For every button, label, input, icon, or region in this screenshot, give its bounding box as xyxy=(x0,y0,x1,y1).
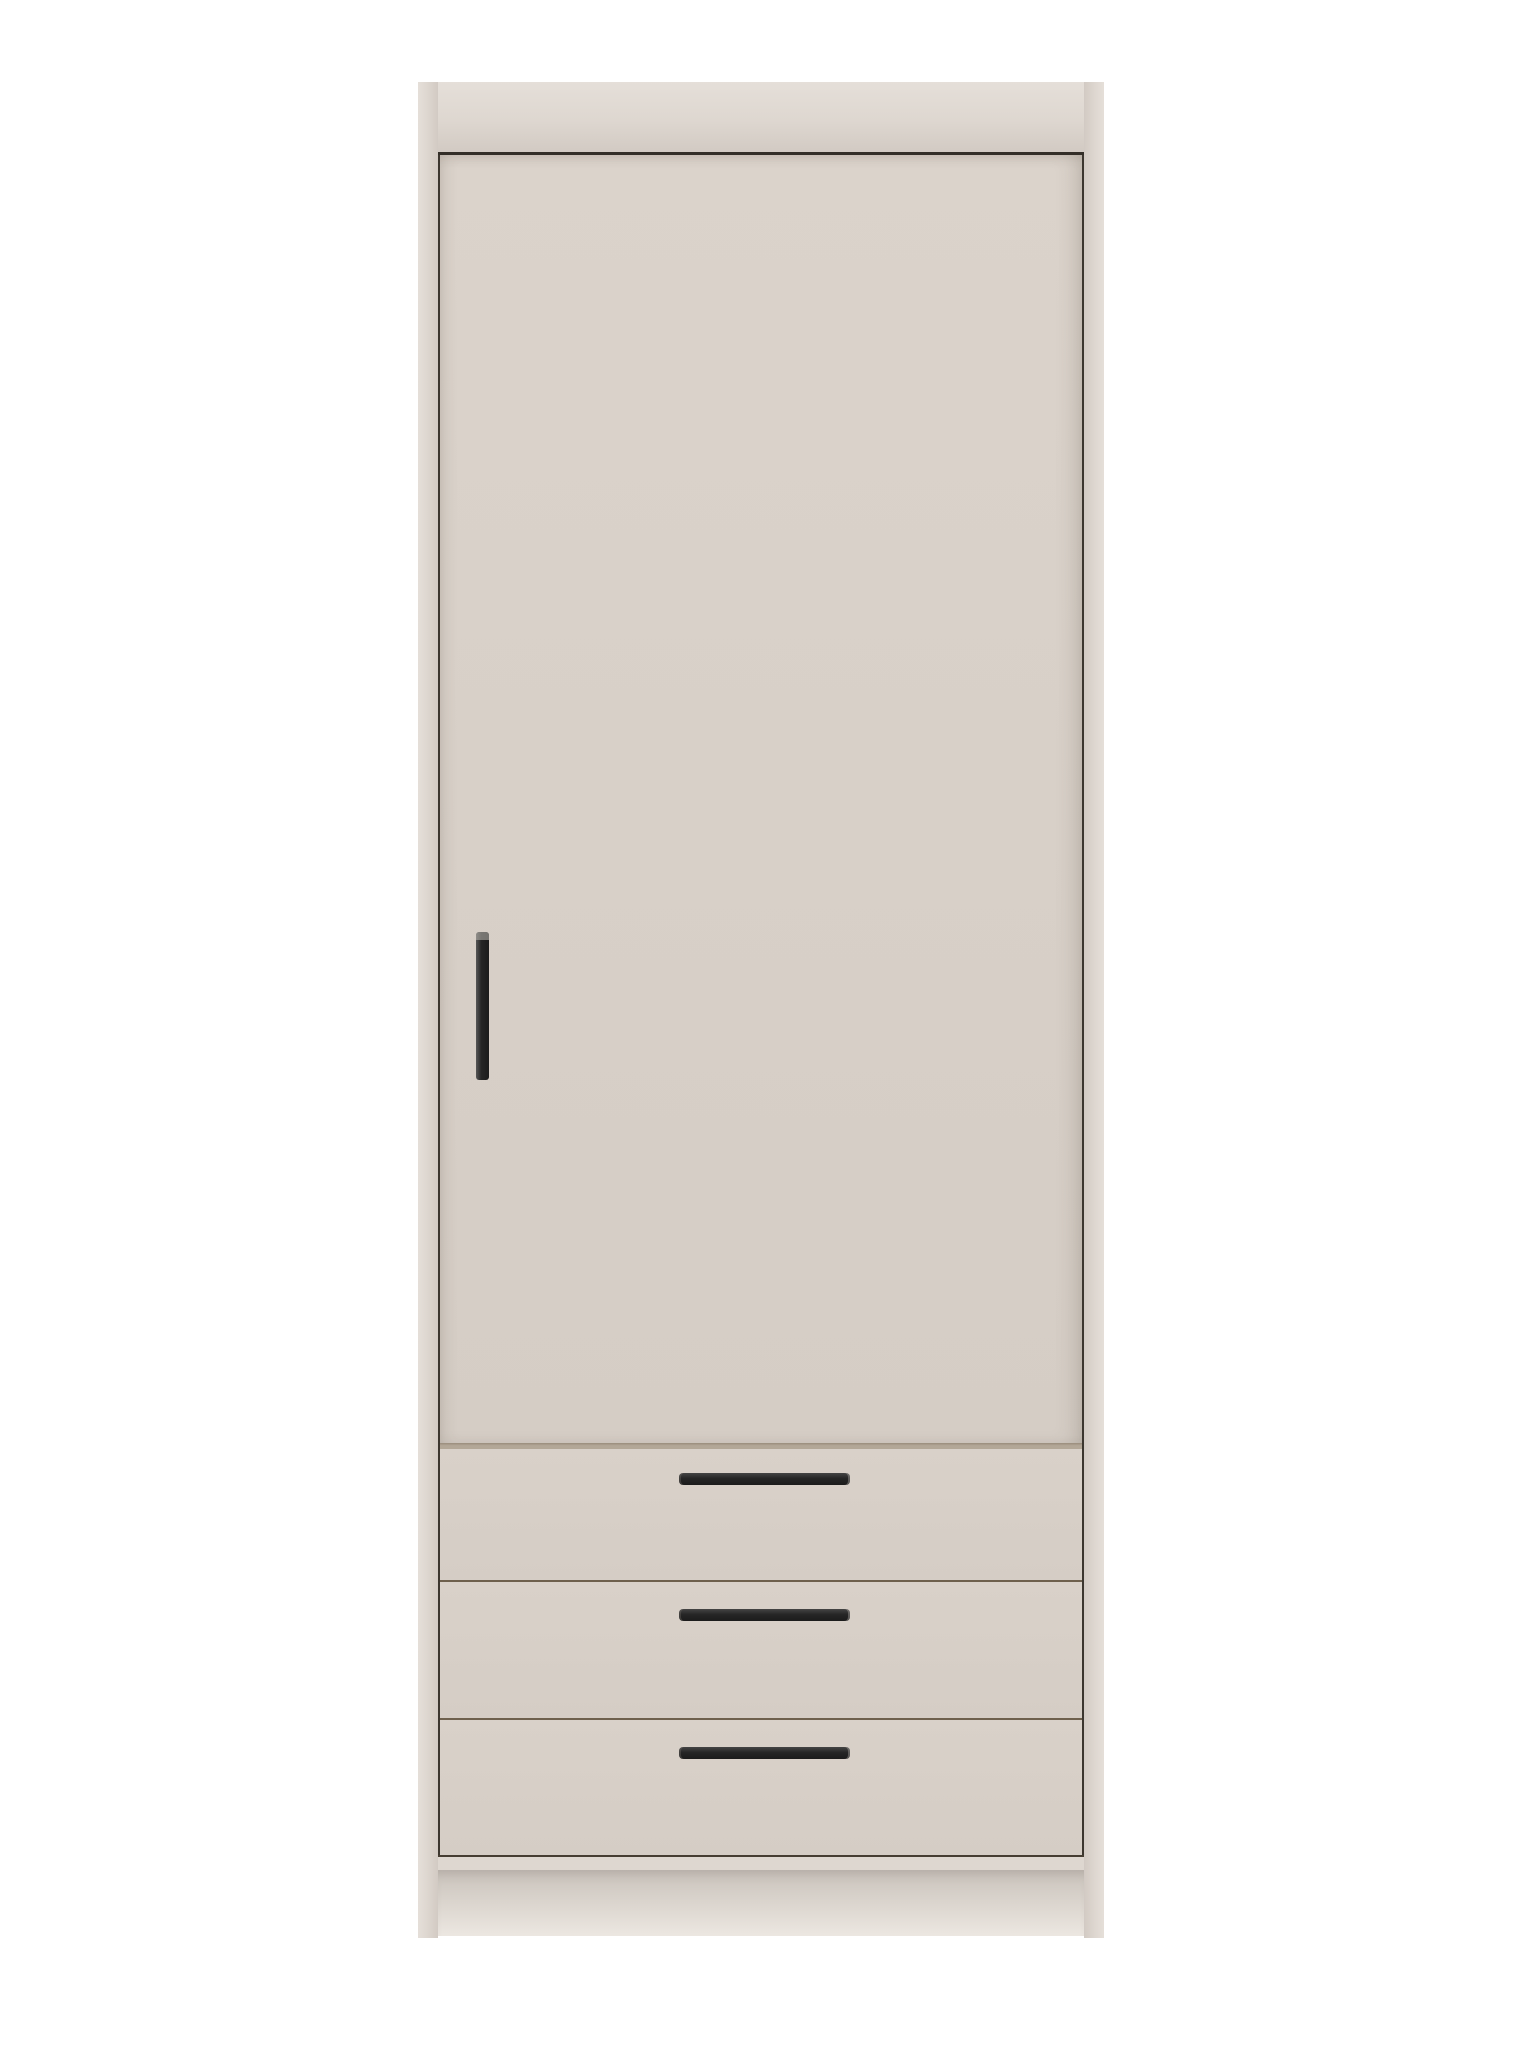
drawer-1-handle xyxy=(679,1473,850,1485)
wardrobe xyxy=(418,82,1104,1938)
drawer-2-front xyxy=(440,1580,1082,1718)
drawer-1-front xyxy=(440,1449,1082,1580)
plinth-shadow xyxy=(438,1870,1084,1936)
right-side-panel xyxy=(1084,82,1104,1938)
wardrobe-door xyxy=(438,155,1084,1443)
wardrobe-top-rail xyxy=(438,82,1084,152)
drawer-stack xyxy=(438,1443,1084,1855)
door-handle xyxy=(476,932,489,1080)
product-photo xyxy=(0,0,1536,2048)
drawer-3-handle xyxy=(679,1747,850,1759)
bottom-rail xyxy=(438,1857,1084,1870)
drawer-3-front xyxy=(440,1718,1082,1855)
drawer-2-handle xyxy=(679,1609,850,1621)
left-side-panel xyxy=(418,82,438,1938)
